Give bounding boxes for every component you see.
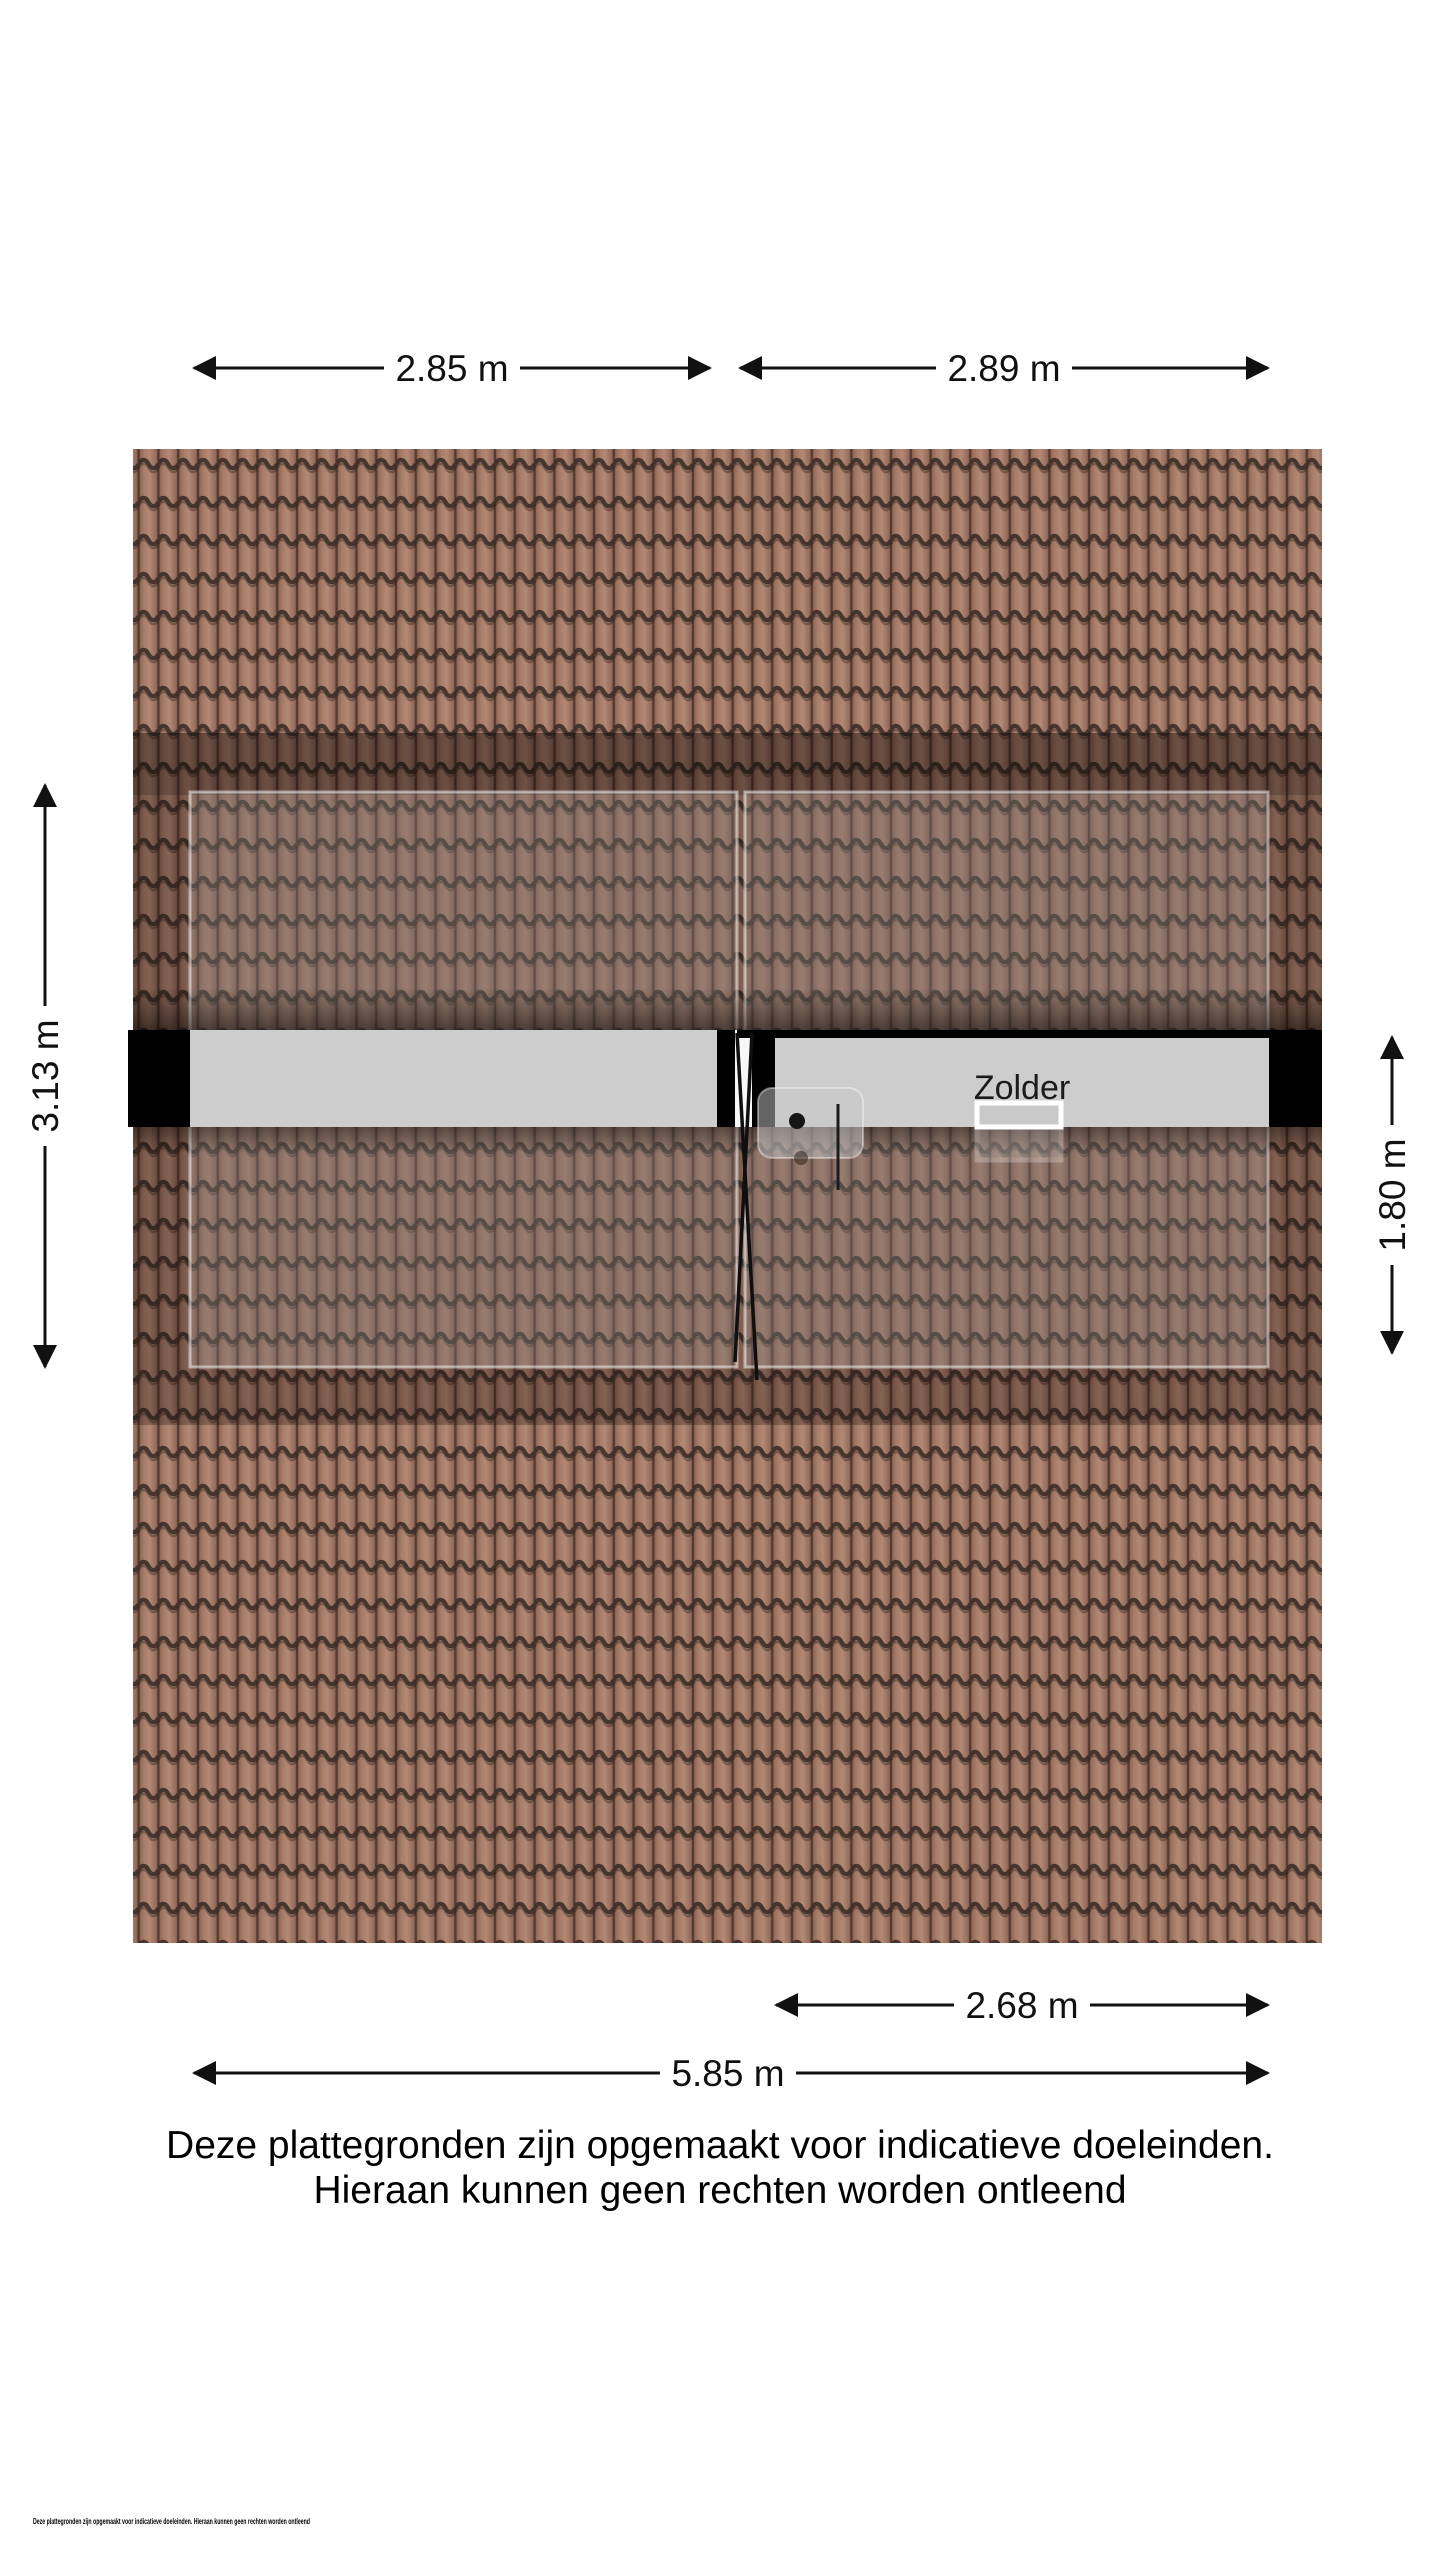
dimension-bottom-room: 2.68 m [776, 1985, 1268, 2026]
dimension-left: 3.13 m [25, 785, 66, 1367]
eave-shadow-upper [133, 988, 1322, 1030]
roof-shade-band-top-edge [133, 733, 1322, 795]
door-hinge-dot [789, 1113, 805, 1129]
dim-label-top-right: 2.89 m [947, 348, 1060, 389]
wall-center-a [717, 1030, 735, 1127]
door-swing-arc [758, 1088, 863, 1158]
floorplan-svg: Zolder 2.85 m 2.89 m 3.13 m 1.80 m 2.68 … [0, 0, 1440, 2560]
wall-top-right-room [737, 1030, 1269, 1038]
wall-left [128, 1030, 190, 1127]
floor-strip [128, 1030, 1322, 1153]
dimension-bottom-total: 5.85 m [194, 2053, 1268, 2094]
dim-label-bottom-total: 5.85 m [671, 2053, 784, 2094]
door-hinge-dot-ghost [794, 1151, 808, 1165]
skylight-ghost [977, 1127, 1061, 1160]
floor-left-room [190, 1030, 717, 1127]
dimension-top-left: 2.85 m [194, 348, 710, 389]
wall-right [1269, 1030, 1322, 1127]
dim-label-right: 1.80 m [1372, 1138, 1413, 1251]
footer-small-print: Deze plattegronden zijn opgemaakt voor i… [33, 2516, 310, 2526]
roof [133, 449, 1322, 1943]
dimension-right: 1.80 m [1372, 1037, 1413, 1353]
disclaimer: Deze plattegronden zijn opgemaakt voor i… [166, 2124, 1274, 2212]
room-label: Zolder [974, 1069, 1070, 1107]
dimension-top-right: 2.89 m [740, 348, 1268, 389]
dim-label-top-left: 2.85 m [395, 348, 508, 389]
dim-label-bottom-room: 2.68 m [965, 1985, 1078, 2026]
eave-shadow-lower [133, 1127, 1322, 1153]
disclaimer-line1: Deze plattegronden zijn opgemaakt voor i… [166, 2124, 1274, 2167]
disclaimer-line2: Hieraan kunnen geen rechten worden ontle… [313, 2169, 1126, 2212]
dim-label-left: 3.13 m [25, 1019, 66, 1132]
floorplan-page: Zolder 2.85 m 2.89 m 3.13 m 1.80 m 2.68 … [0, 0, 1440, 2560]
